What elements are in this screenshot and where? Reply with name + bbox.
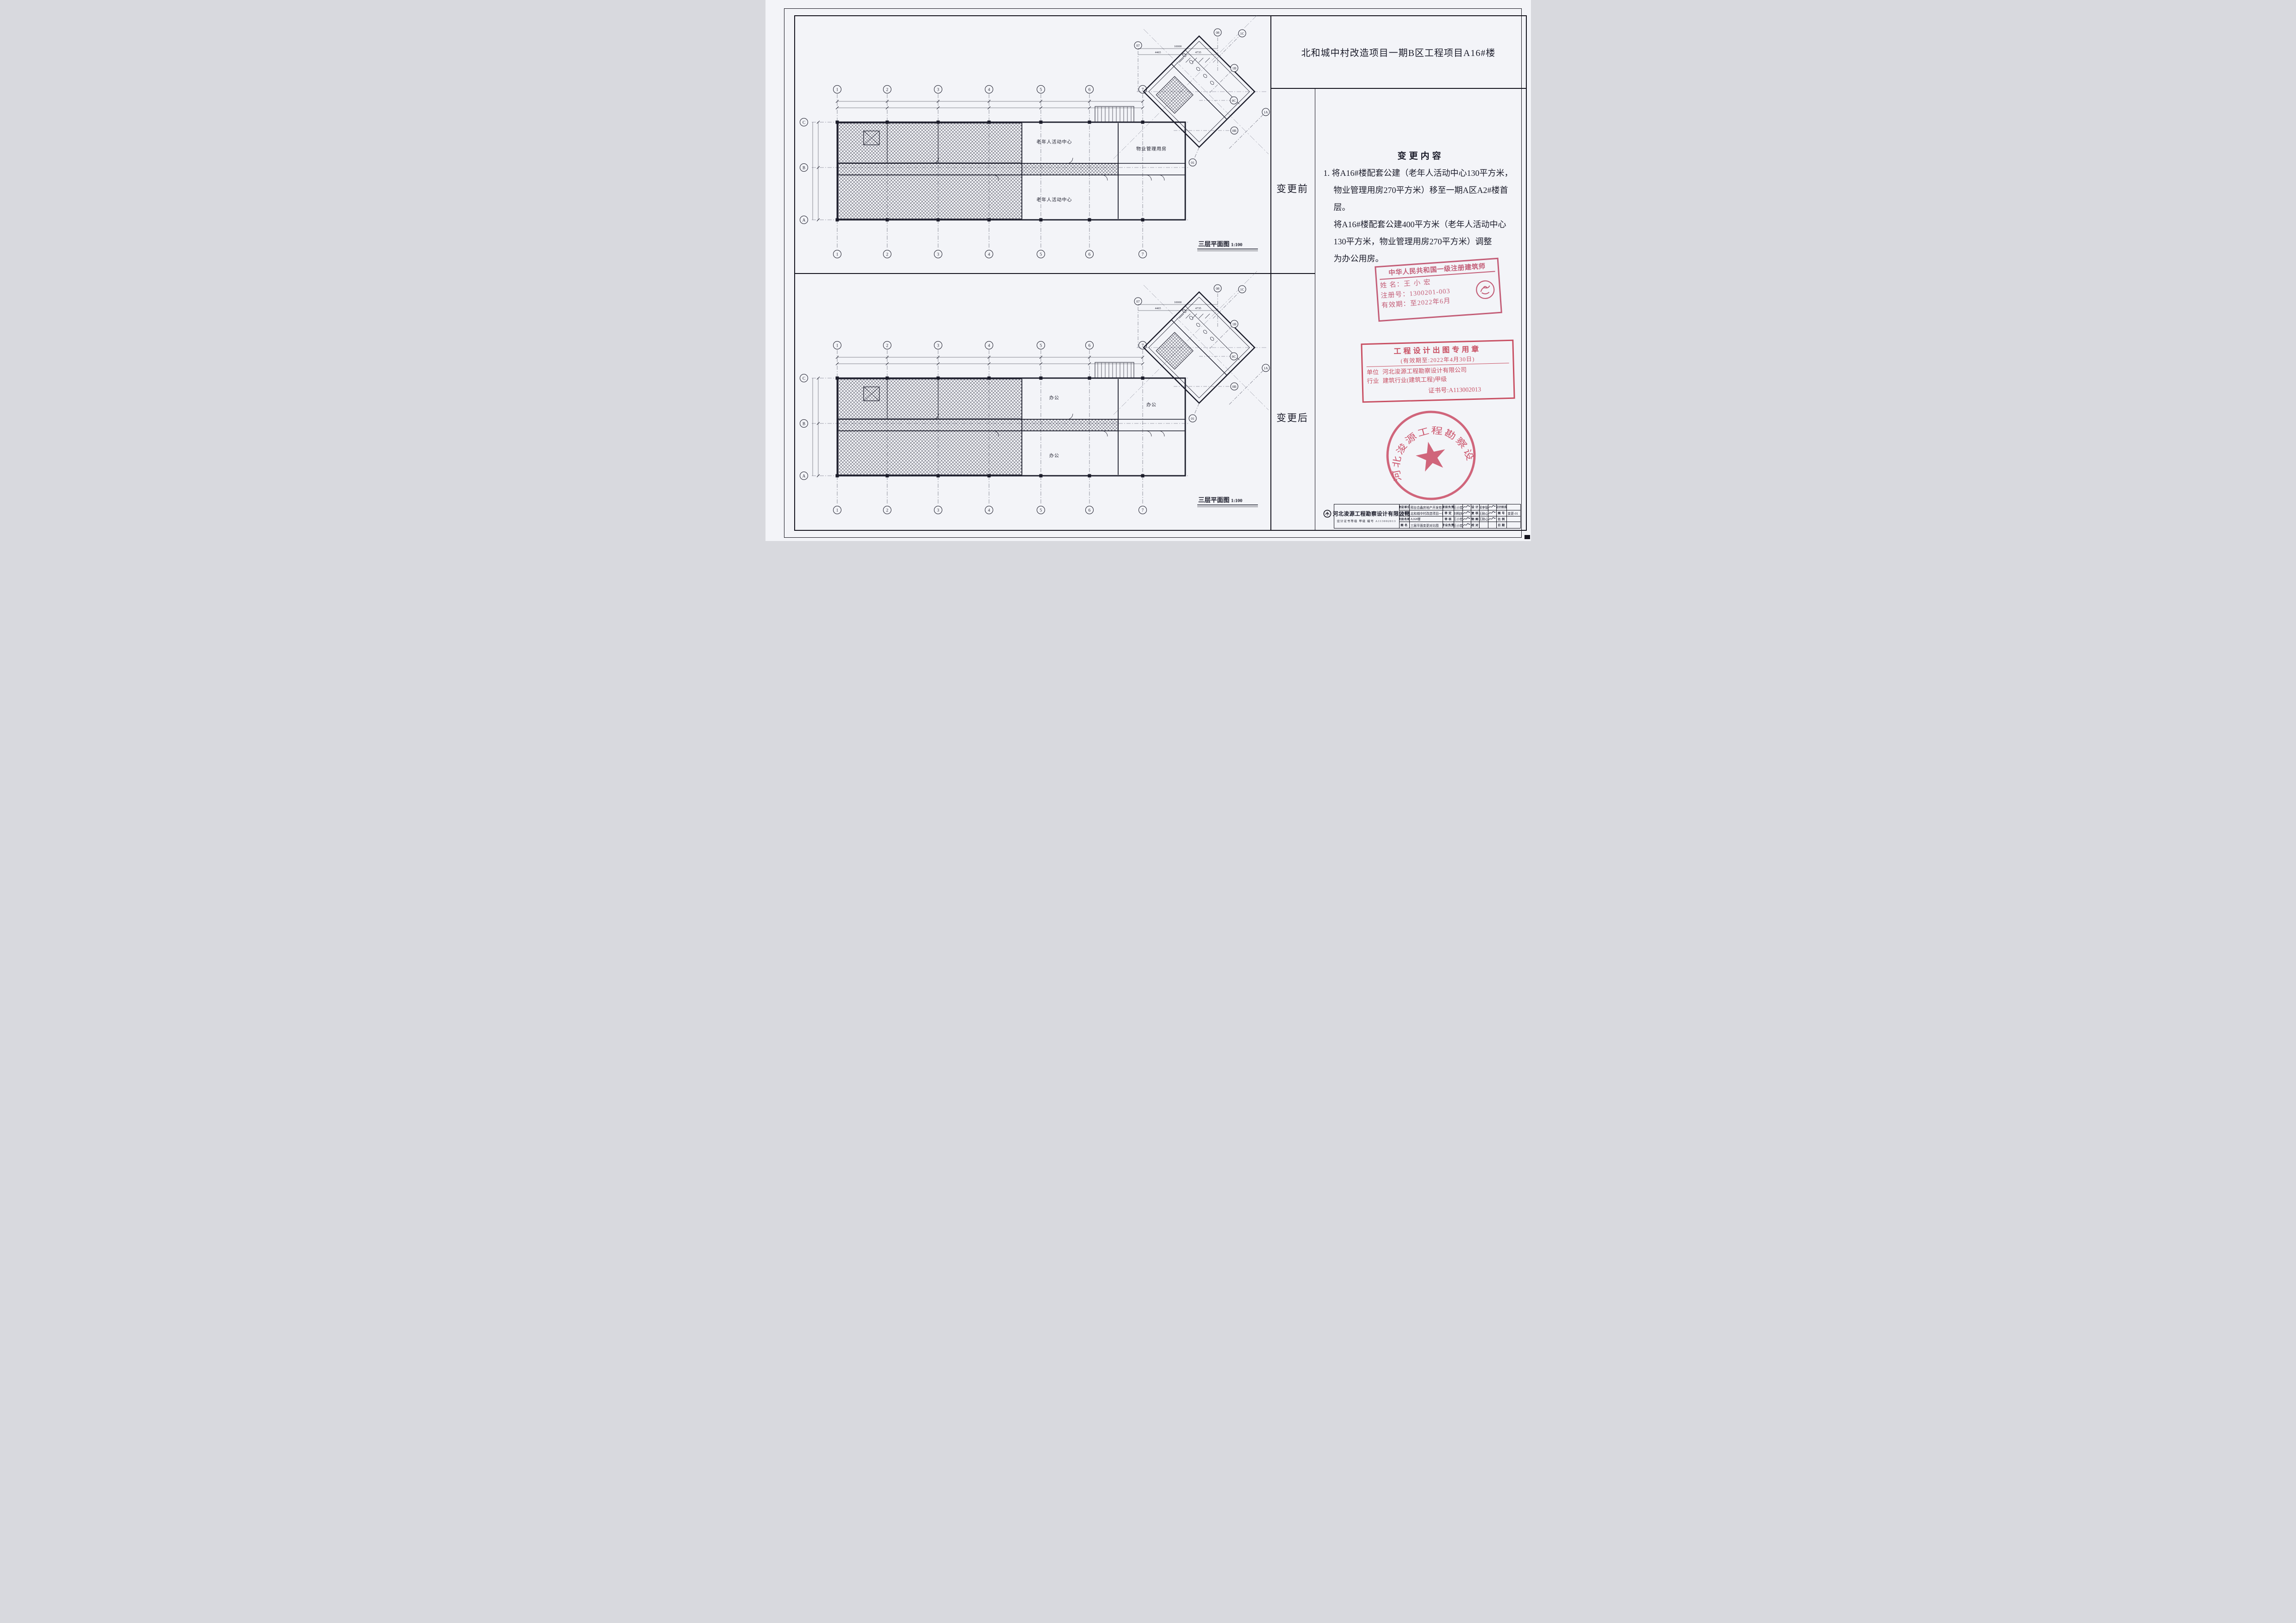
unit-label: 单位 xyxy=(1366,368,1378,376)
signature-cell xyxy=(1488,504,1497,510)
tb-header-cell: 设计阶段 xyxy=(1497,504,1507,510)
svg-text:0B: 0B xyxy=(1232,129,1236,133)
svg-text:4: 4 xyxy=(988,252,990,256)
tb-header-cell: 图 号 xyxy=(1497,510,1507,516)
tb-value-cell: 制 图 xyxy=(1471,516,1480,522)
svg-text:6: 6 xyxy=(1088,508,1090,512)
svg-text:2: 2 xyxy=(886,508,888,512)
svg-text:1B: 1B xyxy=(1232,66,1236,70)
tb-value-cell: 王小宏 xyxy=(1454,504,1463,510)
floor-plan-after: 11223344556677CBA07081C1B1A0C0B011000044… xyxy=(794,271,1270,529)
change-content-text: 1. 将A16#楼配套公建（老年人活动中心130平方米， 物业管理用房270平方… xyxy=(1324,165,1528,267)
svg-text:3: 3 xyxy=(937,87,939,92)
floor-plan-before: 11223344556677CBA07081C1B1A0C0B011000044… xyxy=(794,15,1270,274)
valid-label: 有效期： xyxy=(1381,300,1410,309)
tb-header-cell xyxy=(1480,522,1488,528)
tb-value-cell: 王小宏 xyxy=(1454,516,1463,522)
svg-text:0B: 0B xyxy=(1232,385,1236,389)
signature-cell xyxy=(1488,516,1497,522)
svg-text:C: C xyxy=(802,376,805,380)
svg-text:1: 1 xyxy=(836,508,838,512)
signature-mark xyxy=(1488,505,1496,509)
change-line: 1. 将A16#楼配套公建（老年人活动中心130平方米， xyxy=(1324,165,1528,182)
svg-text:5: 5 xyxy=(1039,252,1042,256)
tb-value-cell: 王小宏 xyxy=(1454,522,1463,528)
svg-text:01: 01 xyxy=(1191,417,1195,421)
svg-text:0C: 0C xyxy=(1232,354,1236,359)
room-label: 老年人活动中心 xyxy=(1036,139,1072,145)
tb-header-cell: 建设单位 xyxy=(1400,504,1410,510)
page-title: 北和城中村改造项目一期B区工程项目A16#楼 xyxy=(1270,45,1527,59)
signature-cell xyxy=(1488,510,1497,516)
svg-text:07: 07 xyxy=(1136,299,1140,304)
plan-caption: 三层平面图 1:100 xyxy=(1198,241,1242,248)
scan-corner-mark xyxy=(1524,535,1530,539)
svg-text:07: 07 xyxy=(1136,44,1140,48)
svg-text:7: 7 xyxy=(1141,252,1144,256)
svg-text:B: B xyxy=(802,165,805,170)
svg-text:1A: 1A xyxy=(1263,110,1268,114)
room-label: 办公 xyxy=(1049,395,1059,401)
tb-value-cell xyxy=(1507,522,1520,528)
signature-mark xyxy=(1488,511,1496,515)
tb-header-cell: 王耐心 xyxy=(1480,516,1488,522)
seal-star-icon xyxy=(1413,439,1449,473)
company-round-seal: 河北浚源工程勘察设计有限公司 xyxy=(1376,400,1486,510)
svg-text:4735: 4735 xyxy=(1195,307,1201,310)
signature-mark xyxy=(1463,523,1470,527)
room-label: 办公 xyxy=(1049,453,1059,459)
industry-value: 建筑行业(建筑工程)甲级 xyxy=(1382,376,1447,385)
svg-text:C: C xyxy=(802,120,805,124)
svg-text:1: 1 xyxy=(836,252,838,256)
valid-value: 至2022年6月 xyxy=(1410,297,1451,307)
drawing-sheet: 北和城中村改造项目一期B区工程项目A16#楼 变更前 变更后 变更内容 1. 将… xyxy=(765,0,1531,541)
tb-value-cell: 变更-01 xyxy=(1507,510,1520,516)
change-line: 130平方米，物业管理用房270平方米）调整 xyxy=(1324,233,1528,250)
title-block: 河北浚源工程勘察设计有限公司 设计证书等级 甲级 编号 A113002013 建… xyxy=(1334,504,1521,529)
tb-header-cell: 审 核 xyxy=(1443,516,1454,522)
svg-text:0C: 0C xyxy=(1232,99,1236,103)
svg-text:4735: 4735 xyxy=(1195,51,1201,54)
tb-value-cell: 设 计 xyxy=(1471,504,1480,510)
signature-cell xyxy=(1463,522,1471,528)
after-label: 变更后 xyxy=(1270,410,1315,424)
design-output-stamp: 工程设计出图专用章 (有效期至:2022年4月30日) 单位河北浚源工程勘察设计… xyxy=(1361,340,1515,403)
tb-value-cell: 校 对 xyxy=(1471,522,1480,528)
tb-header-cell: 项目名称 xyxy=(1400,516,1410,522)
svg-text:4: 4 xyxy=(988,87,990,92)
tb-value-cell: 北和城中村改造项目一期B区工程项目 xyxy=(1410,510,1443,516)
svg-text:1C: 1C xyxy=(1240,31,1244,36)
svg-text:1C: 1C xyxy=(1240,287,1244,292)
svg-text:08: 08 xyxy=(1216,31,1220,35)
plan-before-drawing: 11223344556677CBA07081C1B1A0C0B011000044… xyxy=(794,15,1270,274)
svg-text:4: 4 xyxy=(988,343,990,348)
tb-value-cell xyxy=(1507,504,1520,510)
svg-text:3: 3 xyxy=(937,508,939,512)
tb-header-cell: 专业负责 xyxy=(1443,522,1454,528)
name-value: 王小宏 xyxy=(1403,279,1433,288)
svg-text:1: 1 xyxy=(836,87,838,92)
signature-mark xyxy=(1463,517,1470,521)
svg-text:6: 6 xyxy=(1088,252,1090,256)
reg-label: 注册号： xyxy=(1381,290,1410,299)
tb-value-cell: A16#楼 xyxy=(1410,516,1443,522)
change-line: 将A16#楼配套公建400平方米（老年人活动中心 xyxy=(1324,216,1528,233)
svg-text:5: 5 xyxy=(1039,87,1042,92)
svg-text:1: 1 xyxy=(836,343,838,348)
signature-mark xyxy=(1488,517,1496,521)
tb-header-cell: 邢李智 xyxy=(1480,504,1488,510)
signature-mark xyxy=(1463,511,1470,515)
svg-text:A: A xyxy=(802,473,805,478)
tb-value-cell xyxy=(1507,516,1520,522)
svg-text:4465: 4465 xyxy=(1155,307,1161,310)
signature-cell xyxy=(1463,510,1471,516)
svg-text:6: 6 xyxy=(1088,87,1090,92)
change-content-heading: 变更内容 xyxy=(1315,149,1527,162)
signature-cell xyxy=(1463,516,1471,522)
svg-text:5: 5 xyxy=(1039,343,1042,348)
svg-text:3: 3 xyxy=(937,343,939,348)
signature-cell xyxy=(1463,504,1471,510)
signature-mark xyxy=(1463,505,1470,509)
svg-text:08: 08 xyxy=(1216,286,1220,291)
change-line: 物业管理用房270平方米）移至一期A区A2#楼首 xyxy=(1324,182,1528,199)
tb-header-cell: 审 定 xyxy=(1443,510,1454,516)
room-label: 物业管理用房 xyxy=(1136,146,1167,152)
svg-text:2: 2 xyxy=(886,252,888,256)
reg-value: 1300201-003 xyxy=(1409,287,1450,298)
tb-value-cell: 复 核 xyxy=(1471,510,1480,516)
svg-text:10000: 10000 xyxy=(1174,301,1181,304)
svg-text:7: 7 xyxy=(1141,508,1144,512)
svg-text:01: 01 xyxy=(1191,161,1195,165)
room-label: 老年人活动中心 xyxy=(1036,197,1072,203)
tb-header-cell: 图 名 xyxy=(1400,522,1410,528)
company-name: 河北浚源工程勘察设计有限公司 xyxy=(1333,510,1410,517)
room-label: 办公 xyxy=(1146,402,1157,408)
svg-text:10000: 10000 xyxy=(1174,45,1181,48)
svg-text:4465: 4465 xyxy=(1155,51,1161,54)
plan-after-drawing: 11223344556677CBA07081C1B1A0C0B011000044… xyxy=(794,271,1270,529)
unit-value: 河北浚源工程勘察设计有限公司 xyxy=(1382,366,1466,375)
title-block-company-cell: 河北浚源工程勘察设计有限公司 设计证书等级 甲级 编号 A113002013 xyxy=(1334,504,1400,528)
svg-text:1B: 1B xyxy=(1232,322,1236,326)
tb-value-cell: 三层平面变更对比图 xyxy=(1410,522,1443,528)
svg-text:B: B xyxy=(802,421,805,426)
name-label: 姓 名： xyxy=(1380,280,1404,290)
plan-caption: 三层平面图 1:100 xyxy=(1198,497,1242,504)
tb-value-cell: 刘明庆 xyxy=(1454,510,1463,516)
svg-text:1A: 1A xyxy=(1263,366,1268,370)
tb-header-cell: 工程名称 xyxy=(1400,510,1410,516)
stamp-cert-number: 证书号:A113002013 xyxy=(1367,383,1509,396)
tb-header-cell: 日 期 xyxy=(1497,522,1507,528)
before-label: 变更前 xyxy=(1270,181,1315,195)
svg-text:2: 2 xyxy=(886,87,888,92)
tb-value-cell: 邢台合鑫房地产开发有限公司 xyxy=(1410,504,1443,510)
svg-text:4: 4 xyxy=(988,508,990,512)
tb-header-cell: 王耐心 xyxy=(1480,510,1488,516)
company-logo-icon xyxy=(1323,510,1332,518)
tb-value-cell xyxy=(1488,522,1497,528)
tb-header-cell: 项目负责 xyxy=(1443,504,1454,510)
industry-label: 行业 xyxy=(1367,377,1379,385)
title-block-table: 建设单位邢台合鑫房地产开发有限公司项目负责王小宏设 计邢李智设计阶段工程名称北和… xyxy=(1400,504,1520,528)
architect-registration-stamp: 中华人民共和国一级注册建筑师 姓 名：王小宏 注册号：1300201-003 有… xyxy=(1375,258,1502,322)
tb-header-cell: 比 例 xyxy=(1497,516,1507,522)
svg-text:6: 6 xyxy=(1088,343,1090,348)
svg-text:5: 5 xyxy=(1039,508,1042,512)
svg-text:3: 3 xyxy=(937,252,939,256)
svg-text:A: A xyxy=(802,218,805,222)
company-cert-line: 设计证书等级 甲级 编号 A113002013 xyxy=(1337,519,1396,523)
architect-emblem-icon xyxy=(1474,279,1496,300)
svg-text:2: 2 xyxy=(886,343,888,348)
divider-header xyxy=(1270,88,1527,89)
change-line: 层。 xyxy=(1324,199,1528,216)
